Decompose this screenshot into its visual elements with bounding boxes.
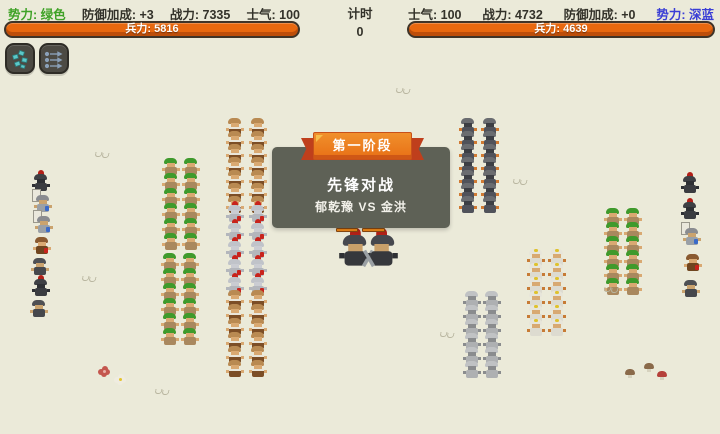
arm-right bbox=[619, 260, 622, 263]
soldier-brown bbox=[227, 360, 243, 378]
collar-band bbox=[229, 355, 241, 357]
arm-right bbox=[177, 168, 180, 171]
arm-right bbox=[241, 215, 244, 218]
arm-right bbox=[197, 183, 200, 186]
flower-decal bbox=[117, 376, 123, 382]
collar-band bbox=[229, 179, 241, 181]
soldier-green bbox=[183, 233, 199, 251]
collar-band bbox=[252, 166, 264, 168]
arm-right bbox=[639, 260, 642, 263]
arm-right bbox=[563, 273, 566, 276]
arm-right bbox=[478, 301, 481, 304]
arm-right bbox=[177, 243, 180, 246]
arm-right bbox=[47, 289, 50, 292]
arm-right bbox=[45, 310, 48, 313]
collar-band bbox=[252, 140, 264, 142]
body bbox=[34, 267, 46, 275]
arm-right bbox=[196, 323, 199, 326]
flower-center bbox=[119, 378, 122, 381]
arm-right bbox=[264, 356, 267, 359]
soldier-darkgray bbox=[460, 196, 476, 214]
soldier-elite-banner bbox=[36, 216, 52, 234]
soldier-silver bbox=[464, 361, 480, 379]
right-troops-bar: 兵力: 4639 bbox=[407, 21, 715, 38]
soldier-green bbox=[163, 233, 179, 251]
arm-right bbox=[542, 259, 545, 262]
collar-band bbox=[252, 341, 264, 343]
arm-right bbox=[542, 273, 545, 276]
flower-decal bbox=[101, 368, 107, 374]
arm-right bbox=[264, 328, 267, 331]
timer-value: 0 bbox=[336, 25, 384, 39]
collar-band bbox=[229, 127, 241, 129]
grass-decal bbox=[155, 389, 169, 395]
arm-right bbox=[542, 287, 545, 290]
stage-title: 先锋对战 bbox=[272, 174, 450, 195]
soldier-darkgray bbox=[482, 196, 498, 214]
arm-right bbox=[563, 315, 566, 318]
left-troops-bar: 兵力: 5816 bbox=[4, 21, 300, 38]
collar-band bbox=[252, 369, 264, 371]
arm-right bbox=[48, 247, 51, 250]
shield-accent bbox=[695, 265, 699, 270]
grass-decal bbox=[440, 332, 454, 338]
arm-right bbox=[698, 238, 701, 241]
arm-right bbox=[542, 301, 545, 304]
arm-right bbox=[196, 278, 199, 281]
body bbox=[684, 211, 696, 219]
arm-right bbox=[241, 300, 244, 303]
shield-accent bbox=[46, 227, 50, 232]
collar-band bbox=[252, 327, 264, 329]
collar-band bbox=[229, 341, 241, 343]
arm-right bbox=[264, 269, 267, 272]
arm-right bbox=[176, 338, 179, 341]
mushroom-cap bbox=[644, 363, 654, 369]
body bbox=[685, 289, 697, 297]
collar-band bbox=[252, 355, 264, 357]
arm-right bbox=[241, 370, 244, 373]
arm-right bbox=[498, 343, 501, 346]
arm-right bbox=[639, 288, 642, 291]
body bbox=[33, 309, 45, 317]
march-button[interactable] bbox=[39, 43, 69, 74]
body bbox=[184, 337, 196, 345]
champion-hp-bar bbox=[336, 228, 358, 232]
soldier-green bbox=[625, 278, 641, 296]
arm-right bbox=[264, 370, 267, 373]
hat-dot bbox=[534, 305, 538, 308]
grass-decal bbox=[82, 276, 96, 282]
arm-right bbox=[196, 263, 199, 266]
arm-right bbox=[47, 184, 50, 187]
arm-right bbox=[639, 232, 642, 235]
hat-dot bbox=[534, 319, 538, 322]
soldier-elite-plume bbox=[33, 279, 49, 297]
game-screen: 势力: 绿色 防御加成: +3 战力: 7335 士气: 100 兵力: 581… bbox=[0, 0, 720, 434]
hat-dot bbox=[534, 277, 538, 280]
stage-matchup: 郁乾豫 VS 金洪 bbox=[272, 198, 450, 215]
arm-right bbox=[241, 356, 244, 359]
mushroom-cap bbox=[625, 369, 635, 375]
soldier-silver bbox=[484, 361, 500, 379]
arm-right bbox=[177, 213, 180, 216]
arm-right bbox=[264, 251, 267, 254]
mushroom-decal bbox=[625, 369, 635, 378]
soldier-elite-brown bbox=[34, 237, 50, 255]
soldier-elite-plume bbox=[682, 202, 698, 220]
arm-right bbox=[176, 308, 179, 311]
arm-right bbox=[197, 213, 200, 216]
arm-right bbox=[49, 205, 52, 208]
hat-dot bbox=[555, 249, 559, 252]
arm-right bbox=[176, 263, 179, 266]
body bbox=[627, 287, 639, 295]
arm-right bbox=[176, 293, 179, 296]
collar-band bbox=[252, 299, 264, 301]
flower-center bbox=[103, 370, 106, 373]
soldier-champion bbox=[367, 235, 396, 267]
arm-right bbox=[498, 357, 501, 360]
arm-right bbox=[176, 323, 179, 326]
arm-right bbox=[241, 269, 244, 272]
soldier-elite-banner bbox=[684, 228, 700, 246]
body bbox=[35, 288, 47, 296]
arm-right bbox=[50, 226, 53, 229]
arm-right bbox=[563, 301, 566, 304]
arm-right bbox=[619, 288, 622, 291]
shield-accent bbox=[45, 206, 49, 211]
arm-right bbox=[619, 246, 622, 249]
arm-right bbox=[478, 357, 481, 360]
arm-right bbox=[496, 206, 499, 209]
collar-band bbox=[229, 153, 241, 155]
arm-right bbox=[542, 315, 545, 318]
arm-right bbox=[498, 329, 501, 332]
arm-right bbox=[478, 343, 481, 346]
arm-right bbox=[196, 338, 199, 341]
arm-right bbox=[563, 287, 566, 290]
collar-band bbox=[252, 127, 264, 129]
arm-right bbox=[197, 228, 200, 231]
arm-right bbox=[478, 371, 481, 374]
hat-dot bbox=[534, 249, 538, 252]
hat-dot bbox=[555, 277, 559, 280]
body bbox=[466, 370, 478, 378]
arm-right bbox=[177, 183, 180, 186]
arm-right bbox=[498, 301, 501, 304]
arm-right bbox=[176, 278, 179, 281]
collar-band bbox=[229, 299, 241, 301]
collar-band bbox=[252, 192, 264, 194]
body bbox=[486, 370, 498, 378]
hat-dot bbox=[555, 291, 559, 294]
soldier-elite-gray bbox=[683, 280, 699, 298]
arm-right bbox=[196, 308, 199, 311]
stage-banner: 第一阶段 bbox=[313, 132, 412, 160]
collar-band bbox=[229, 140, 241, 142]
timer-label: 计时 bbox=[336, 3, 384, 22]
arm-right bbox=[177, 228, 180, 231]
collar-band bbox=[229, 369, 241, 371]
arm-right bbox=[197, 243, 200, 246]
arm-right bbox=[696, 186, 699, 189]
shield-accent bbox=[694, 239, 698, 244]
champion-hp-bar bbox=[362, 228, 385, 232]
mushroom-decal bbox=[644, 363, 654, 372]
arm-right bbox=[696, 212, 699, 215]
arm-right bbox=[241, 328, 244, 331]
soldier-elite-plume bbox=[682, 176, 698, 194]
soldier-whiteyellow bbox=[549, 319, 565, 337]
march-arrows-icon bbox=[44, 49, 64, 71]
grass-decal bbox=[513, 179, 527, 185]
arm-right bbox=[478, 315, 481, 318]
arm-right bbox=[619, 274, 622, 277]
battle-timer: 计时 0 bbox=[336, 3, 384, 39]
body bbox=[684, 185, 696, 193]
mushroom-cap bbox=[657, 371, 667, 377]
body bbox=[185, 242, 197, 250]
collar-band bbox=[229, 313, 241, 315]
body bbox=[462, 205, 474, 213]
arm-right bbox=[619, 232, 622, 235]
soldier-elite-gray bbox=[31, 300, 47, 318]
collar-band bbox=[252, 313, 264, 315]
shield-accent bbox=[44, 248, 48, 253]
soldier-whiteyellow bbox=[528, 319, 544, 337]
arm-right bbox=[197, 198, 200, 201]
collar-band bbox=[252, 179, 264, 181]
soldier-elite-gray bbox=[32, 258, 48, 276]
arm-right bbox=[264, 300, 267, 303]
arm-right bbox=[542, 329, 545, 332]
body bbox=[530, 328, 542, 336]
arm-right bbox=[639, 218, 642, 221]
arm-right bbox=[241, 314, 244, 317]
arm-right bbox=[563, 259, 566, 262]
arm-right bbox=[498, 371, 501, 374]
body bbox=[484, 205, 496, 213]
body bbox=[165, 242, 177, 250]
arm-right bbox=[241, 342, 244, 345]
arm-right bbox=[196, 293, 199, 296]
hat-dot bbox=[555, 319, 559, 322]
collar-band bbox=[252, 153, 264, 155]
arm-right bbox=[177, 198, 180, 201]
soldier-green bbox=[182, 328, 198, 346]
body bbox=[164, 337, 176, 345]
arm-right bbox=[264, 233, 267, 236]
soldier-green bbox=[162, 328, 178, 346]
collar-band bbox=[229, 327, 241, 329]
grass-decal bbox=[396, 88, 410, 94]
hat-dot bbox=[534, 291, 538, 294]
collar-band bbox=[229, 166, 241, 168]
formation-icon bbox=[10, 49, 30, 71]
hat-dot bbox=[534, 263, 538, 266]
grass-decal bbox=[95, 152, 109, 158]
arm-right bbox=[241, 251, 244, 254]
body bbox=[551, 328, 563, 336]
arm-right bbox=[563, 329, 566, 332]
arm-right bbox=[699, 264, 702, 267]
formation-button[interactable] bbox=[5, 43, 35, 74]
arm-right bbox=[697, 290, 700, 293]
arm-right bbox=[264, 314, 267, 317]
arm-right bbox=[474, 206, 477, 209]
arm-right bbox=[241, 233, 244, 236]
collar-band bbox=[229, 192, 241, 194]
arm-right bbox=[197, 168, 200, 171]
arm-right bbox=[264, 215, 267, 218]
hat-dot bbox=[555, 263, 559, 266]
soldier-elite-brown bbox=[685, 254, 701, 272]
grass-decal bbox=[604, 287, 618, 293]
soldier-brown bbox=[250, 360, 266, 378]
mushroom-decal bbox=[657, 371, 667, 380]
arm-right bbox=[478, 329, 481, 332]
arm-right bbox=[264, 342, 267, 345]
arm-left bbox=[392, 253, 397, 258]
arm-right bbox=[639, 246, 642, 249]
arm-right bbox=[46, 268, 49, 271]
arm-right bbox=[639, 274, 642, 277]
hat-dot bbox=[555, 305, 559, 308]
arm-right bbox=[498, 315, 501, 318]
arm-right bbox=[619, 218, 622, 221]
